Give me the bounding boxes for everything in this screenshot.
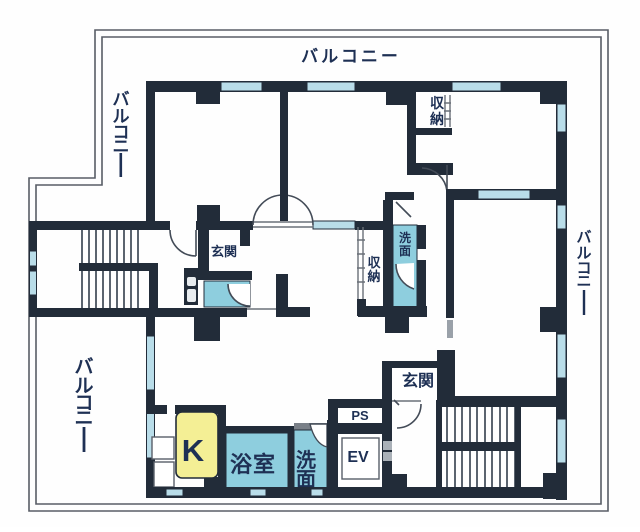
svg-text:ニ: ニ (74, 408, 93, 429)
svg-text:EV: EV (347, 449, 369, 466)
svg-text:ニ: ニ (576, 273, 591, 290)
svg-text:バ: バ (576, 229, 591, 246)
svg-text:浴室: 浴室 (230, 452, 276, 477)
svg-text:バ: バ (74, 356, 93, 378)
svg-text:面: 面 (399, 244, 411, 258)
svg-text:K: K (182, 433, 205, 468)
svg-text:収: 収 (367, 255, 381, 270)
svg-text:バルコニー: バルコニー (301, 47, 401, 66)
svg-text:PS: PS (351, 408, 369, 423)
svg-text:納: 納 (430, 111, 444, 127)
svg-text:玄関: 玄関 (402, 371, 434, 390)
svg-text:収: 収 (430, 95, 445, 111)
svg-text:納: 納 (367, 269, 380, 284)
svg-text:玄関: 玄関 (211, 244, 237, 259)
svg-text:洗: 洗 (399, 230, 411, 245)
